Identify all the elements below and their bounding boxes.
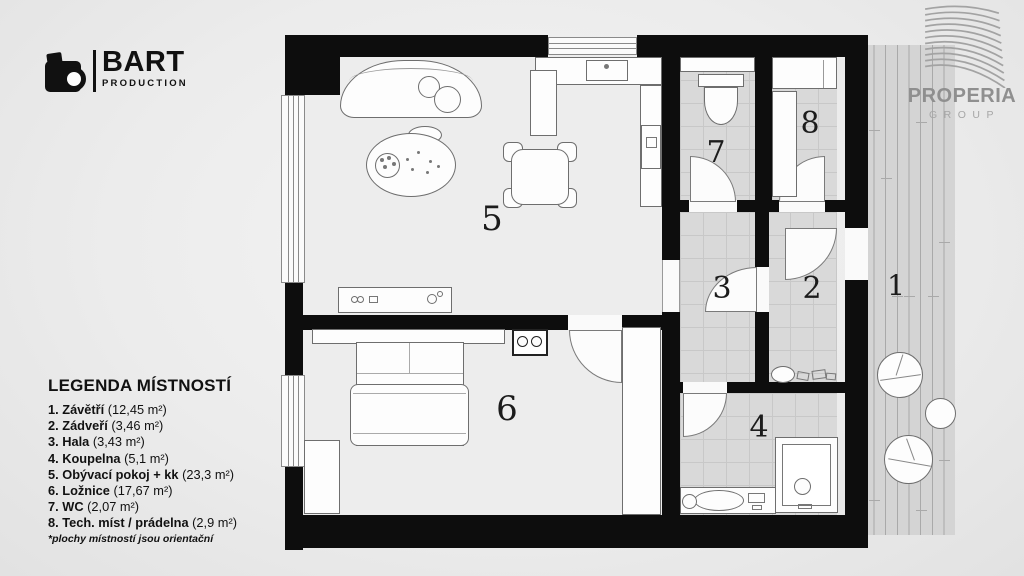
legend: LEGENDA MÍSTNOSTÍ 1. Závětří (12,45 m²) … — [48, 376, 288, 545]
room-label-7: 7 — [706, 138, 725, 168]
properia-logo-sub: GROUP — [908, 109, 1021, 121]
deck-table — [925, 398, 956, 429]
properia-fan-icon — [910, 4, 1014, 88]
toilet-tank — [698, 74, 744, 87]
shower-faucet — [798, 504, 812, 509]
properia-logo-name: PROPERIA — [903, 86, 1021, 106]
wardrobe-tall — [622, 327, 661, 515]
shoes — [826, 373, 837, 381]
deck-joint — [904, 296, 915, 297]
room-label-1: 1 — [887, 272, 905, 300]
deck-joint — [869, 500, 880, 501]
wall — [662, 382, 683, 393]
room-label-6: 6 — [496, 392, 518, 426]
legend-item: 1. Závětří (12,45 m²) — [48, 402, 288, 418]
legend-item: 8. Tech. míst / prádelna (2,9 m²) — [48, 515, 288, 531]
wall — [662, 200, 690, 212]
wardrobe — [304, 440, 340, 514]
bart-logo-sub: PRODUCTION — [102, 78, 188, 89]
radiator-unit — [512, 329, 548, 356]
wall — [845, 35, 868, 228]
properia-logo: PROPERIA GROUP — [903, 4, 1021, 134]
legend-item: 7. WC (2,07 m²) — [48, 499, 288, 515]
kitchen-appliance — [641, 125, 661, 169]
camera-icon — [45, 52, 89, 94]
room-label-3: 3 — [712, 274, 731, 304]
wc-shelf — [680, 57, 755, 72]
legend-item: 6. Ložnice (17,67 m²) — [48, 483, 288, 499]
wall — [845, 280, 868, 515]
deck-joint — [928, 296, 939, 297]
wall — [285, 35, 340, 95]
deck-joint — [869, 130, 880, 131]
kitchen-cabinet — [530, 70, 557, 136]
floor-plan-page: 5 6 7 8 3 2 4 1 BART PRODUCTION — [0, 0, 1024, 576]
deck-joint — [916, 510, 927, 511]
toiletry — [752, 505, 762, 510]
tv-cabinet — [338, 287, 452, 313]
tech-shelf — [772, 57, 837, 89]
legend-item: 5. Obývací pokoj + kk (23,3 m²) — [48, 467, 288, 483]
shower-head — [794, 478, 811, 495]
legend-title: LEGENDA MÍSTNOSTÍ — [48, 376, 288, 396]
wall — [736, 200, 779, 212]
ball-chair — [877, 352, 923, 398]
legend-item: 3. Hala (3,43 m²) — [48, 434, 288, 450]
shoes — [811, 369, 826, 380]
legend-item: 2. Zádveří (3,46 m²) — [48, 418, 288, 434]
door-opening — [568, 315, 622, 330]
wall — [662, 312, 680, 515]
wall — [727, 382, 845, 393]
tech-cabinet — [772, 91, 797, 197]
entry-basket — [771, 366, 795, 383]
dining-table — [511, 149, 569, 205]
deck-joint — [939, 242, 950, 243]
faucet-icon — [604, 64, 609, 69]
room-label-2: 2 — [802, 274, 821, 304]
wall — [637, 35, 868, 57]
passage-opening — [662, 260, 680, 312]
wall — [303, 315, 568, 330]
sofa-cushion — [434, 86, 461, 113]
legend-footnote: *plochy místností jsou orientační — [48, 533, 288, 545]
wall — [285, 515, 868, 548]
logo-divider — [93, 50, 96, 92]
window — [548, 37, 637, 55]
room-label-4: 4 — [749, 413, 768, 443]
shower — [775, 437, 838, 513]
ball-chair — [884, 435, 933, 484]
wall — [825, 200, 845, 212]
entrance-opening — [845, 228, 868, 280]
window — [281, 95, 305, 283]
room-label-8: 8 — [800, 109, 819, 139]
bart-logo: BART PRODUCTION — [45, 46, 225, 96]
door-opening — [755, 267, 769, 312]
wall — [755, 212, 769, 267]
bed-blanket — [350, 384, 469, 446]
room-label-5: 5 — [481, 202, 503, 236]
deck-joint — [881, 178, 892, 179]
wall — [755, 312, 769, 382]
wall — [755, 57, 772, 200]
legend-item: 4. Koupelna (5,1 m²) — [48, 451, 288, 467]
toiletry — [748, 493, 765, 503]
bart-logo-name: BART — [102, 48, 188, 77]
sink-basin — [694, 490, 744, 511]
floor-rooms-5-6 — [303, 57, 662, 515]
wall — [662, 57, 680, 260]
wall — [285, 283, 303, 375]
toiletry — [682, 494, 697, 509]
deck-joint — [939, 460, 950, 461]
door-opening — [683, 382, 727, 393]
